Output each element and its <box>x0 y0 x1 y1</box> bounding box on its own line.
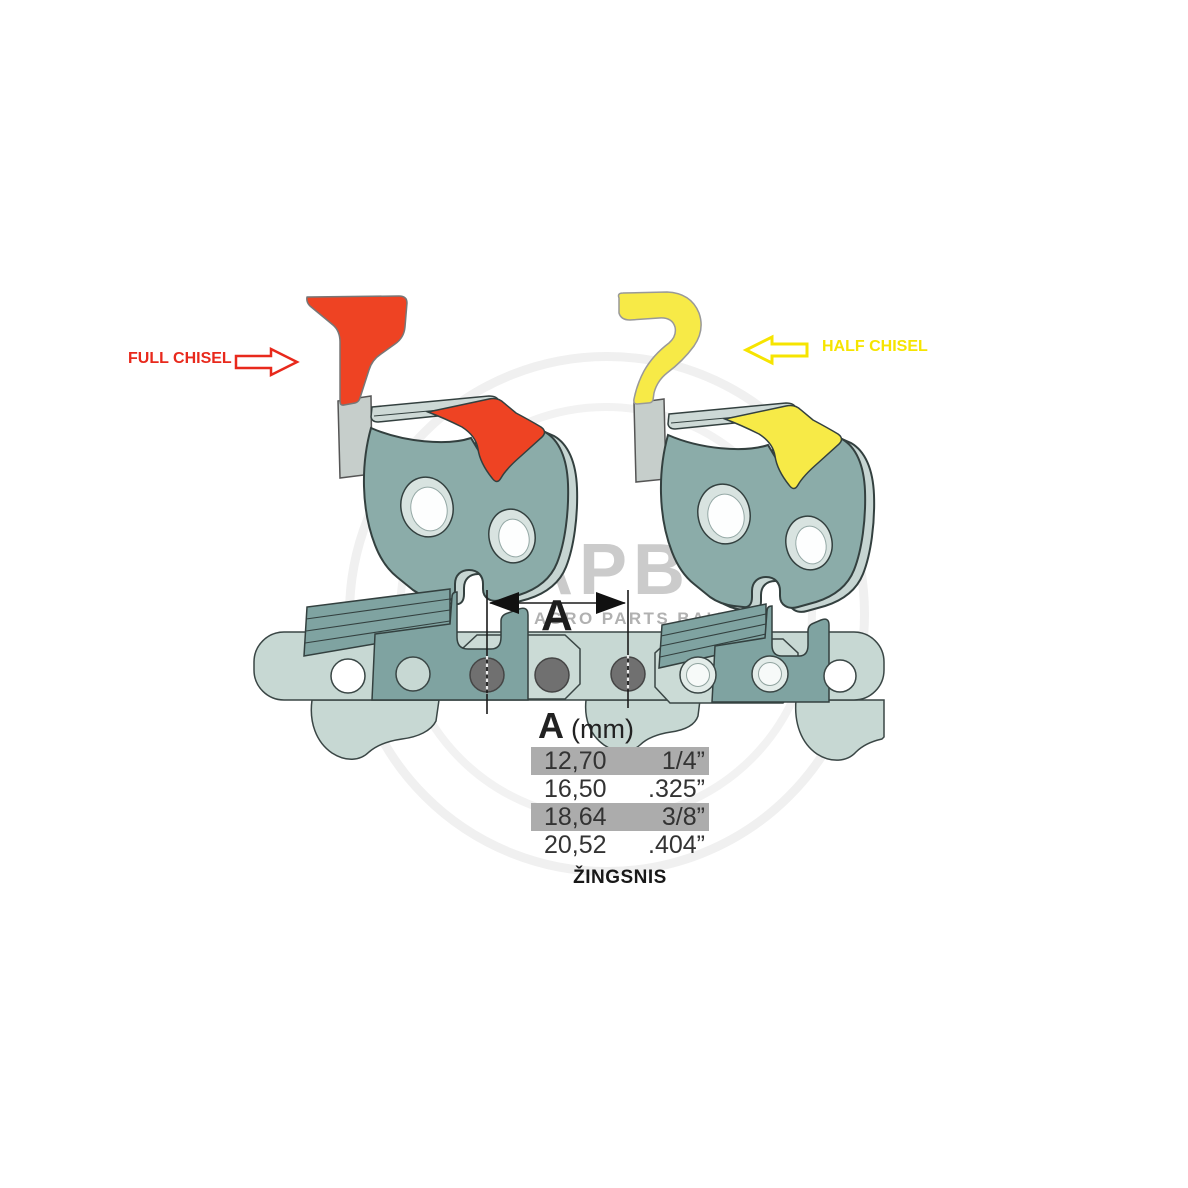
pitch-table-row: 20,52 .404” <box>531 831 709 859</box>
chain-pitch-diagram: APB AGRO PARTS BALTIJA <box>0 0 1188 1188</box>
full-chisel-label: FULL CHISEL <box>128 350 232 368</box>
pitch-mm-value: 18,64 <box>544 803 607 832</box>
pitch-mm-value: 16,50 <box>544 775 607 804</box>
pitch-dimension-label: A <box>541 594 573 638</box>
pitch-mm-value: 20,52 <box>544 831 607 860</box>
pitch-table-header: A (mm) <box>531 705 709 747</box>
pitch-table-row: 16,50 .325” <box>531 775 709 803</box>
pitch-table-header-unit: (mm) <box>571 714 634 745</box>
pitch-caption: ŽINGSNIS <box>531 867 709 889</box>
labels-layer: FULL CHISEL HALF CHISEL A A (mm) 12,70 1… <box>0 0 1188 1188</box>
pitch-table: A (mm) 12,70 1/4” 16,50 .325” 18,64 3/8”… <box>531 705 709 889</box>
pitch-table-row: 12,70 1/4” <box>531 747 709 775</box>
pitch-inch-value: 3/8” <box>662 803 705 832</box>
pitch-inch-value: 1/4” <box>662 747 705 776</box>
pitch-mm-value: 12,70 <box>544 747 607 776</box>
pitch-inch-value: .404” <box>648 831 705 860</box>
pitch-table-row: 18,64 3/8” <box>531 803 709 831</box>
pitch-table-header-letter: A <box>538 705 564 747</box>
half-chisel-label: HALF CHISEL <box>822 338 928 356</box>
pitch-inch-value: .325” <box>648 775 705 804</box>
